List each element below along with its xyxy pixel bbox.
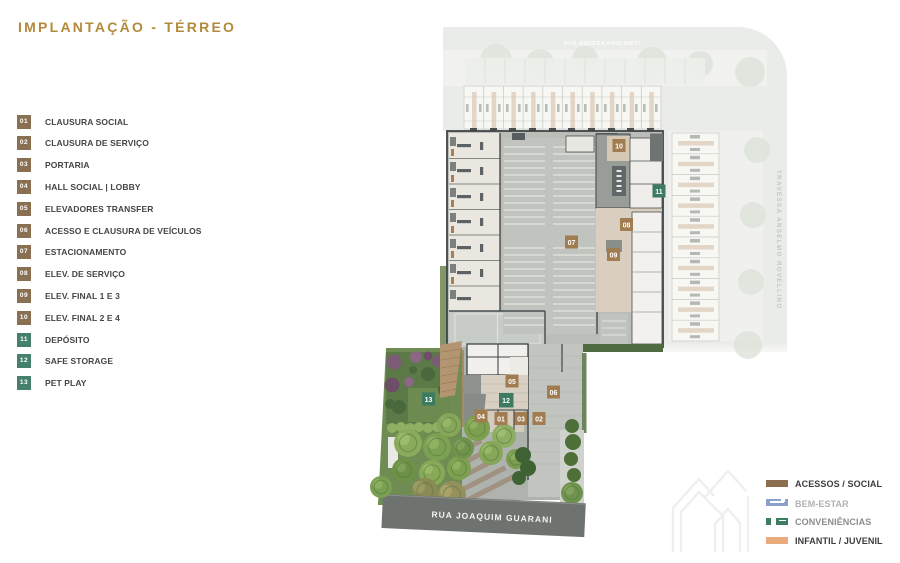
svg-text:TRAVESSA ANSELMO ROVELLINO: TRAVESSA ANSELMO ROVELLINO: [775, 170, 782, 310]
svg-text:06: 06: [550, 390, 558, 397]
svg-text:09: 09: [610, 253, 618, 260]
svg-text:02: 02: [535, 417, 543, 424]
svg-text:03: 03: [517, 417, 525, 424]
svg-text:01: 01: [497, 417, 505, 424]
svg-text:12: 12: [502, 398, 510, 405]
svg-text:10: 10: [615, 144, 623, 151]
svg-text:07: 07: [568, 240, 576, 247]
svg-text:05: 05: [508, 379, 516, 386]
svg-text:04: 04: [477, 414, 485, 421]
svg-text:RUA ANDREA PAULINETI: RUA ANDREA PAULINETI: [564, 41, 641, 47]
svg-text:11: 11: [655, 189, 663, 196]
svg-text:13: 13: [425, 397, 433, 404]
svg-text:08: 08: [623, 223, 631, 230]
